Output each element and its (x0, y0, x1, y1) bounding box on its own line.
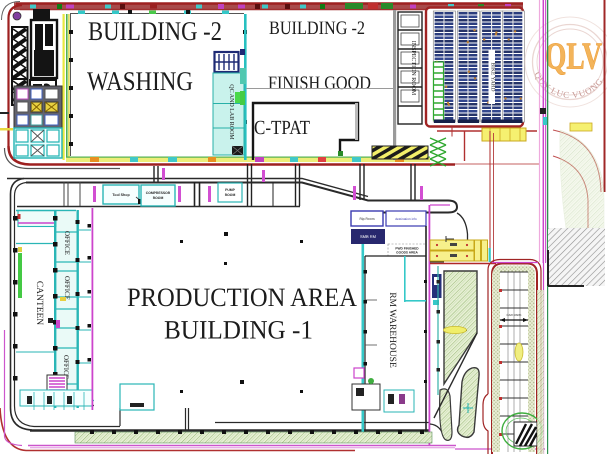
svg-text:BUILDING -2: BUILDING -2 (269, 18, 365, 39)
svg-text:GOODS AREA: GOODS AREA (396, 251, 418, 255)
svg-text:INSPECTION ROOM: INSPECTION ROOM (410, 41, 416, 96)
svg-text:ROOM: ROOM (153, 196, 164, 200)
svg-text:destination info: destination info (395, 217, 417, 221)
svg-text:RM WAREHOUSE: RM WAREHOUSE (387, 292, 397, 368)
svg-text:ROOM: ROOM (225, 193, 236, 197)
svg-text:WASHING: WASHING (87, 66, 193, 96)
svg-text:BIKE YARD: BIKE YARD (490, 63, 496, 92)
svg-text:BUILDING -2: BUILDING -2 (88, 16, 222, 46)
svg-text:Rip Room: Rip Room (359, 217, 374, 221)
svg-text:PRODUCTION AREA: PRODUCTION AREA (127, 282, 357, 312)
svg-text:CAR PARK: CAR PARK (506, 313, 521, 317)
svg-text:CANTEEN: CANTEEN (34, 281, 44, 325)
svg-text:FINISH GOOD: FINISH GOOD (268, 73, 371, 94)
svg-text:COMPRESSOR: COMPRESSOR (146, 191, 171, 195)
svg-text:C-TPAT: C-TPAT (254, 117, 310, 139)
svg-text:OFFICE: OFFICE (63, 231, 71, 255)
svg-text:SMB RM: SMB RM (360, 234, 376, 239)
svg-text:Tool Shop: Tool Shop (112, 193, 130, 197)
svg-text:OFFICE: OFFICE (63, 276, 71, 300)
svg-text:BUILDING -1: BUILDING -1 (164, 315, 313, 345)
svg-text:QC AND LAB ROOM: QC AND LAB ROOM (228, 84, 234, 140)
svg-text:PUMP: PUMP (225, 188, 236, 192)
svg-text:QLV: QLV (545, 36, 602, 78)
